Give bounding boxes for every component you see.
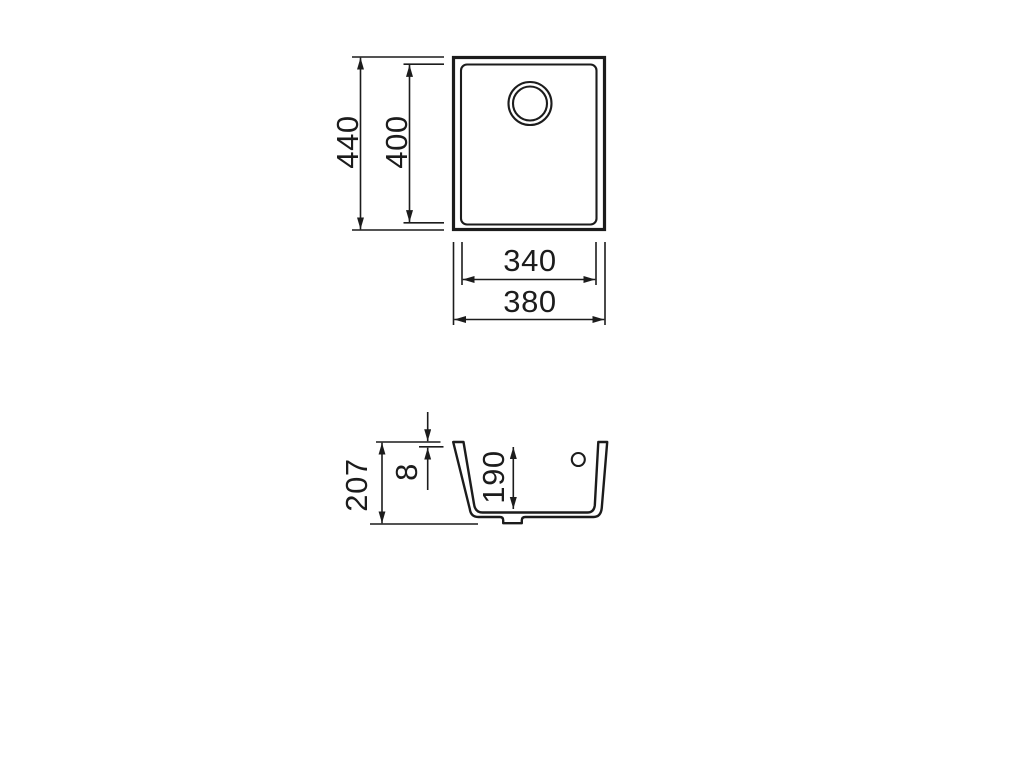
dim-8-label: 8 (389, 463, 424, 481)
dim-380-label: 380 (503, 284, 557, 319)
dim-440-label: 440 (330, 115, 365, 169)
sink-dimension-drawing: 440 400 340 380 207 (0, 0, 1024, 768)
dim-400-label: 400 (379, 115, 414, 169)
section-view: 207 8 190 (339, 412, 607, 524)
dim-207-label: 207 (339, 458, 374, 512)
drawing-canvas: 440 400 340 380 207 (0, 0, 1024, 768)
top-view: 440 400 340 380 (330, 57, 605, 325)
drain-hole-outer-circle (509, 82, 552, 125)
overflow-hole-circle (572, 453, 585, 466)
dim-340-label: 340 (503, 243, 557, 278)
top-view-inner-rect (461, 65, 597, 225)
top-view-outer-rect (454, 58, 605, 230)
drain-hole-inner-circle (513, 87, 547, 121)
dim-190-label: 190 (476, 450, 511, 504)
